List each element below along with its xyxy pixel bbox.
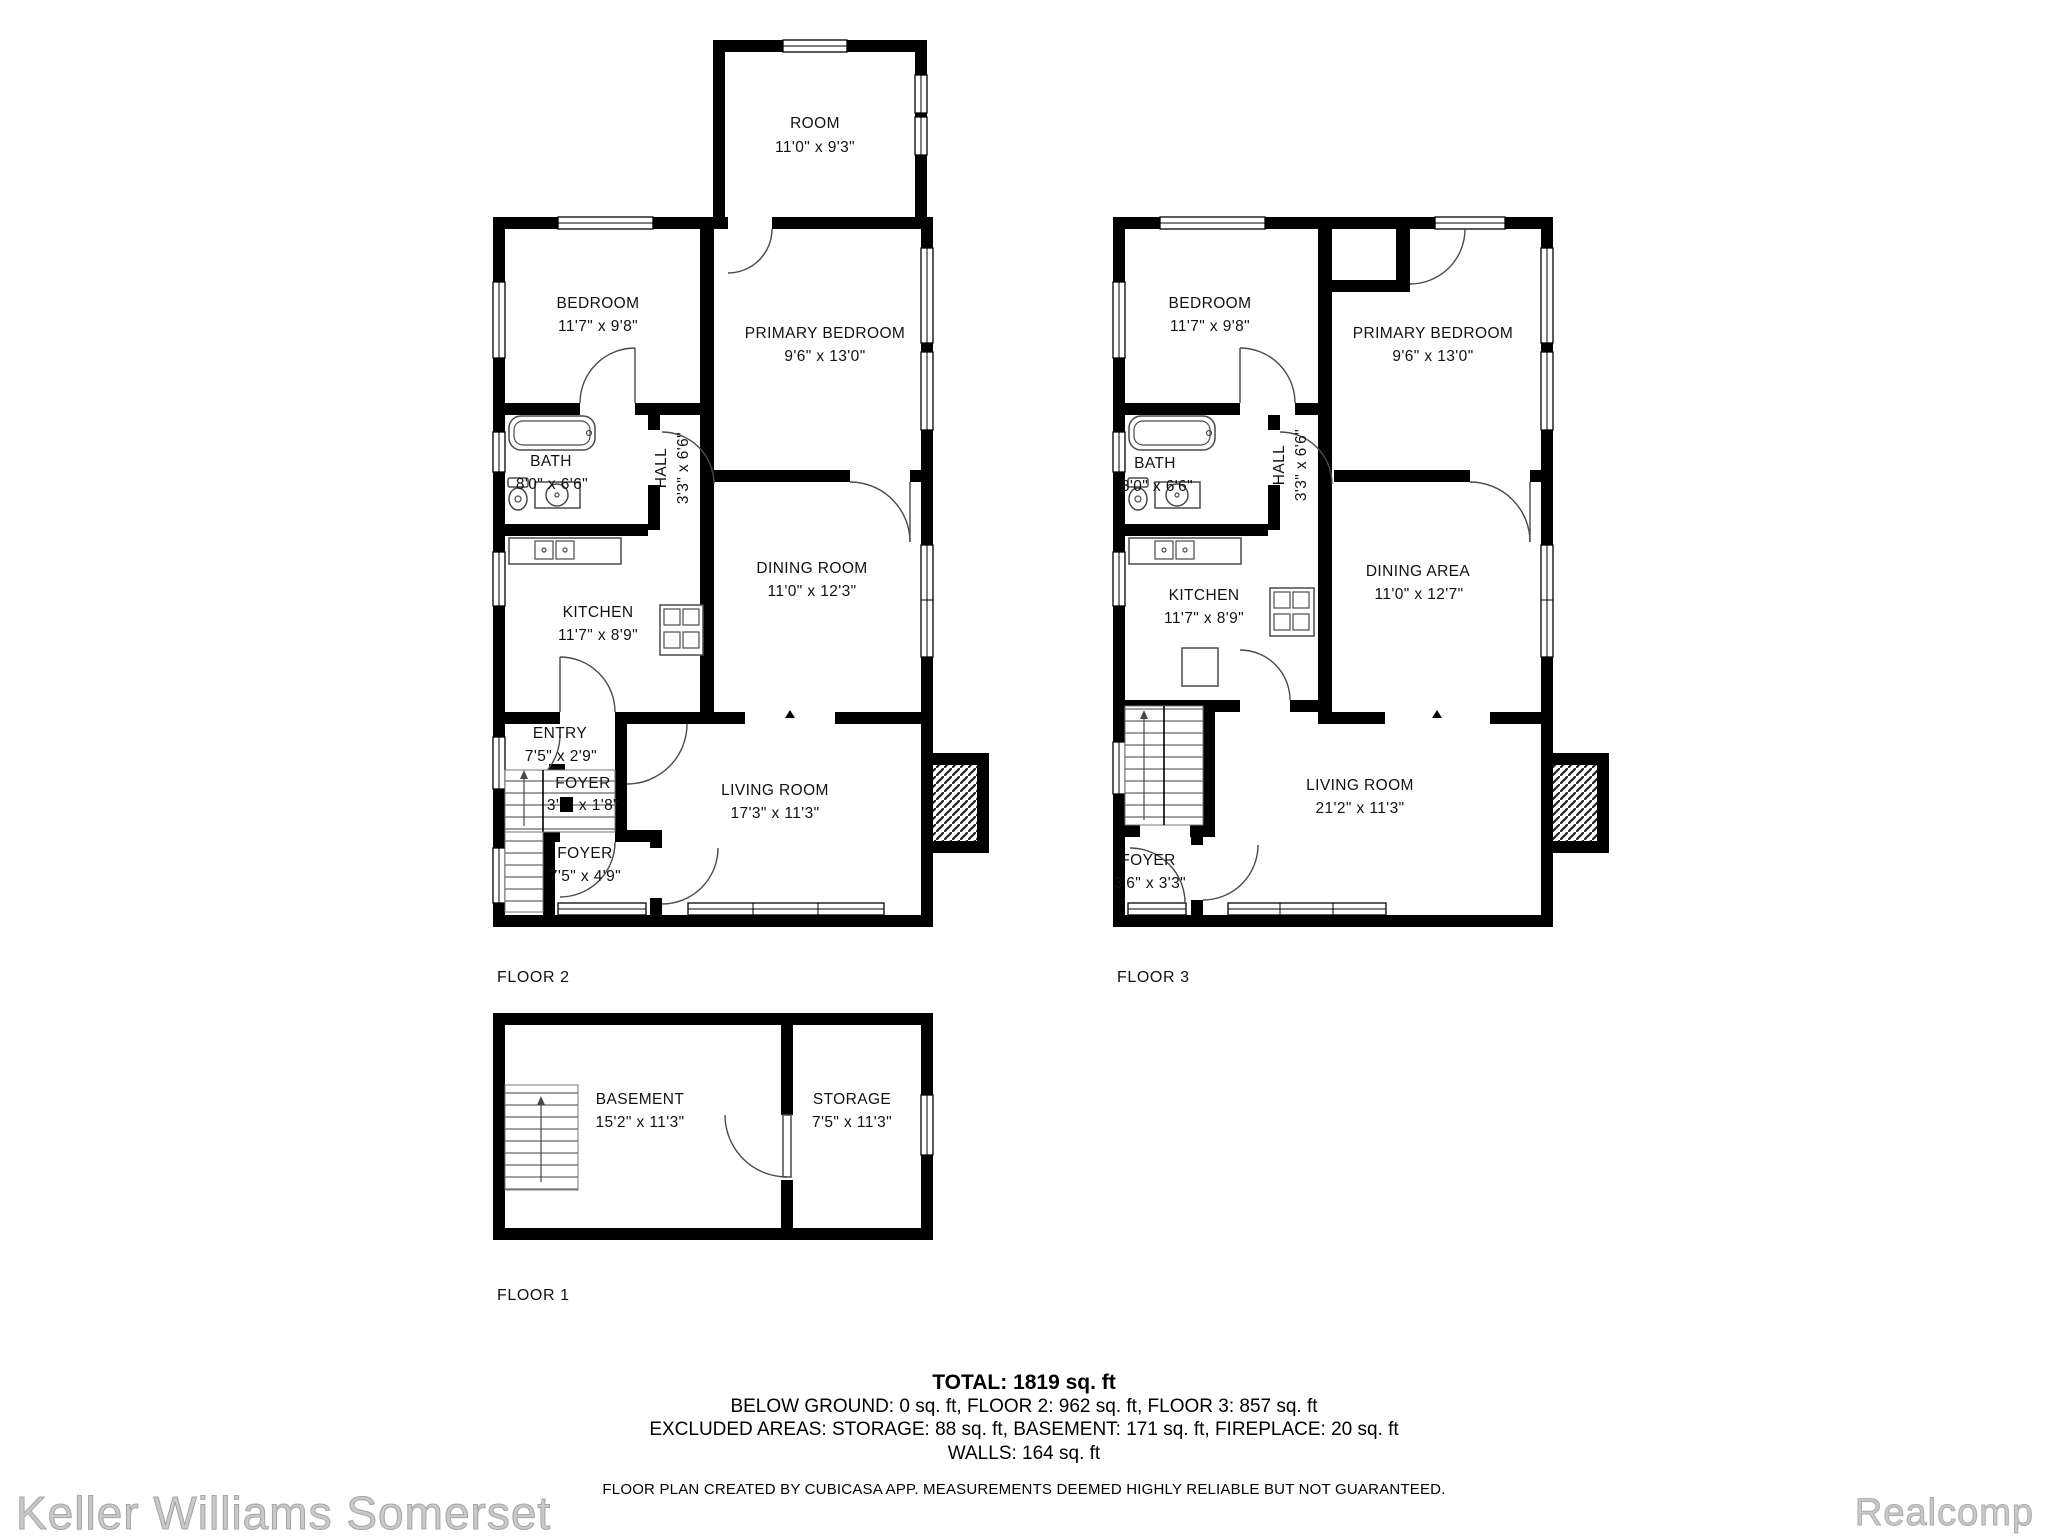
room-label-bedroom-dims: 11'7" x 9'8" bbox=[558, 318, 638, 335]
area-summary: TOTAL: 1819 sq. ft BELOW GROUND: 0 sq. f… bbox=[0, 1371, 2048, 1465]
floor2-caption: FLOOR 2 bbox=[497, 969, 570, 986]
room-label-living-room-dims: 17'3" x 11'3" bbox=[730, 805, 819, 822]
kitchen-counter-icon bbox=[509, 538, 621, 564]
room-label-foyer-upper-name: FOYER bbox=[555, 775, 610, 792]
room-label-bath-dims: 8'0" x 6'6" bbox=[516, 476, 588, 493]
room-label-bath-name: BATH bbox=[1134, 455, 1176, 472]
walls-area-text: WALLS: 164 sq. ft bbox=[0, 1442, 2048, 1466]
room-label-foyer-lower-name: FOYER bbox=[557, 845, 612, 862]
floor3-plan: BEDROOM 11'7" x 9'8" PRIMARY BEDROOM 9'6… bbox=[1113, 217, 1609, 986]
floor1-stairs bbox=[505, 1085, 578, 1190]
room-label-entry-dims: 7'5" x 2'9" bbox=[525, 748, 597, 765]
room-label-basement-name: BASEMENT bbox=[596, 1091, 685, 1108]
floor-plan-page: ROOM 11'0" x 9'3" BEDROOM 11'7" x 9'8" P… bbox=[0, 0, 2048, 1536]
room-label-living-room-name: LIVING ROOM bbox=[721, 782, 829, 799]
svg-text:3'3" x 6'6": 3'3" x 6'6" bbox=[675, 432, 692, 504]
room-label-living-room-dims: 21'2" x 11'3" bbox=[1315, 800, 1404, 817]
stove-icon bbox=[1270, 588, 1314, 636]
room-label-kitchen-name: KITCHEN bbox=[1169, 587, 1240, 604]
floorplan-svg: ROOM 11'0" x 9'3" BEDROOM 11'7" x 9'8" P… bbox=[0, 0, 2048, 1536]
room-label-basement-dims: 15'2" x 11'3" bbox=[595, 1114, 684, 1131]
floor1-caption: FLOOR 1 bbox=[497, 1287, 570, 1304]
room-label-room-dims: 11'0" x 9'3" bbox=[775, 139, 855, 156]
floor-areas-text: BELOW GROUND: 0 sq. ft, FLOOR 2: 962 sq.… bbox=[0, 1395, 2048, 1419]
room-label-storage-dims: 7'5" x 11'3" bbox=[812, 1114, 892, 1131]
room-label-entry-name: ENTRY bbox=[533, 725, 587, 742]
bathtub-icon bbox=[1129, 416, 1215, 450]
stair-wall-overlap bbox=[560, 797, 573, 812]
floor1-doors bbox=[725, 1115, 791, 1177]
room-label-primary-bedroom-name: PRIMARY BEDROOM bbox=[1353, 325, 1513, 342]
room-label-dining-area-dims: 11'0" x 12'7" bbox=[1374, 586, 1463, 603]
excluded-areas-text: EXCLUDED AREAS: STORAGE: 88 sq. ft, BASE… bbox=[0, 1418, 2048, 1442]
room-label-room-name: ROOM bbox=[790, 115, 840, 132]
floor2-plan: ROOM 11'0" x 9'3" BEDROOM 11'7" x 9'8" P… bbox=[493, 40, 989, 986]
room-label-dining-area-name: DINING AREA bbox=[1366, 563, 1471, 580]
room-label-bedroom-dims: 11'7" x 9'8" bbox=[1170, 318, 1250, 335]
room-label-foyer-dims: 3'6" x 3'3" bbox=[1114, 875, 1186, 892]
room-label-living-room-name: LIVING ROOM bbox=[1306, 777, 1414, 794]
opening-tick bbox=[1432, 710, 1442, 718]
room-label-bath-name: BATH bbox=[530, 453, 572, 470]
opening-tick bbox=[785, 710, 795, 718]
svg-text:HALL: HALL bbox=[653, 448, 670, 488]
room-label-primary-bedroom-name: PRIMARY BEDROOM bbox=[745, 325, 905, 342]
room-label-kitchen-dims: 11'7" x 8'9" bbox=[558, 627, 638, 644]
room-label-foyer-name: FOYER bbox=[1120, 852, 1175, 869]
mls-logo: Realcomp bbox=[1855, 1492, 2034, 1535]
room-label-foyer-upper-dims: 3'1" x 1'8" bbox=[547, 797, 619, 814]
brokerage-logo: Keller Williams Somerset bbox=[16, 1486, 551, 1536]
room-label-storage-name: STORAGE bbox=[813, 1091, 891, 1108]
room-label-dining-room-name: DINING ROOM bbox=[756, 560, 867, 577]
top-room-door-gap bbox=[728, 215, 772, 231]
total-area-text: TOTAL: 1819 sq. ft bbox=[0, 1371, 2048, 1395]
fireplace-icon bbox=[1541, 753, 1609, 853]
room-label-bedroom-name: BEDROOM bbox=[1169, 295, 1252, 312]
svg-text:HALL: HALL bbox=[1271, 445, 1288, 485]
room-label-dining-room-dims: 11'0" x 12'3" bbox=[767, 583, 856, 600]
floor1-windows bbox=[921, 1095, 933, 1155]
room-label-bedroom-name: BEDROOM bbox=[557, 295, 640, 312]
svg-text:3'3" x 6'6": 3'3" x 6'6" bbox=[1293, 429, 1310, 501]
bathtub-icon bbox=[509, 416, 595, 450]
room-label-bath-dims: 8'0" x 6'6" bbox=[1121, 478, 1193, 495]
room-label-kitchen-name: KITCHEN bbox=[563, 604, 634, 621]
room-label-primary-bedroom-dims: 9'6" x 13'0" bbox=[784, 348, 865, 365]
floor3-stairs bbox=[1125, 706, 1203, 825]
stove-icon bbox=[660, 605, 703, 655]
room-label-kitchen-dims: 11'7" x 8'9" bbox=[1164, 610, 1244, 627]
floor1-plan: BASEMENT 15'2" x 11'3" STORAGE 7'5" x 11… bbox=[493, 1013, 933, 1304]
floor3-caption: FLOOR 3 bbox=[1117, 969, 1190, 986]
fireplace-icon bbox=[921, 753, 989, 853]
room-label-foyer-lower-dims: 7'5" x 4'9" bbox=[549, 868, 621, 885]
room-label-primary-bedroom-dims: 9'6" x 13'0" bbox=[1392, 348, 1473, 365]
